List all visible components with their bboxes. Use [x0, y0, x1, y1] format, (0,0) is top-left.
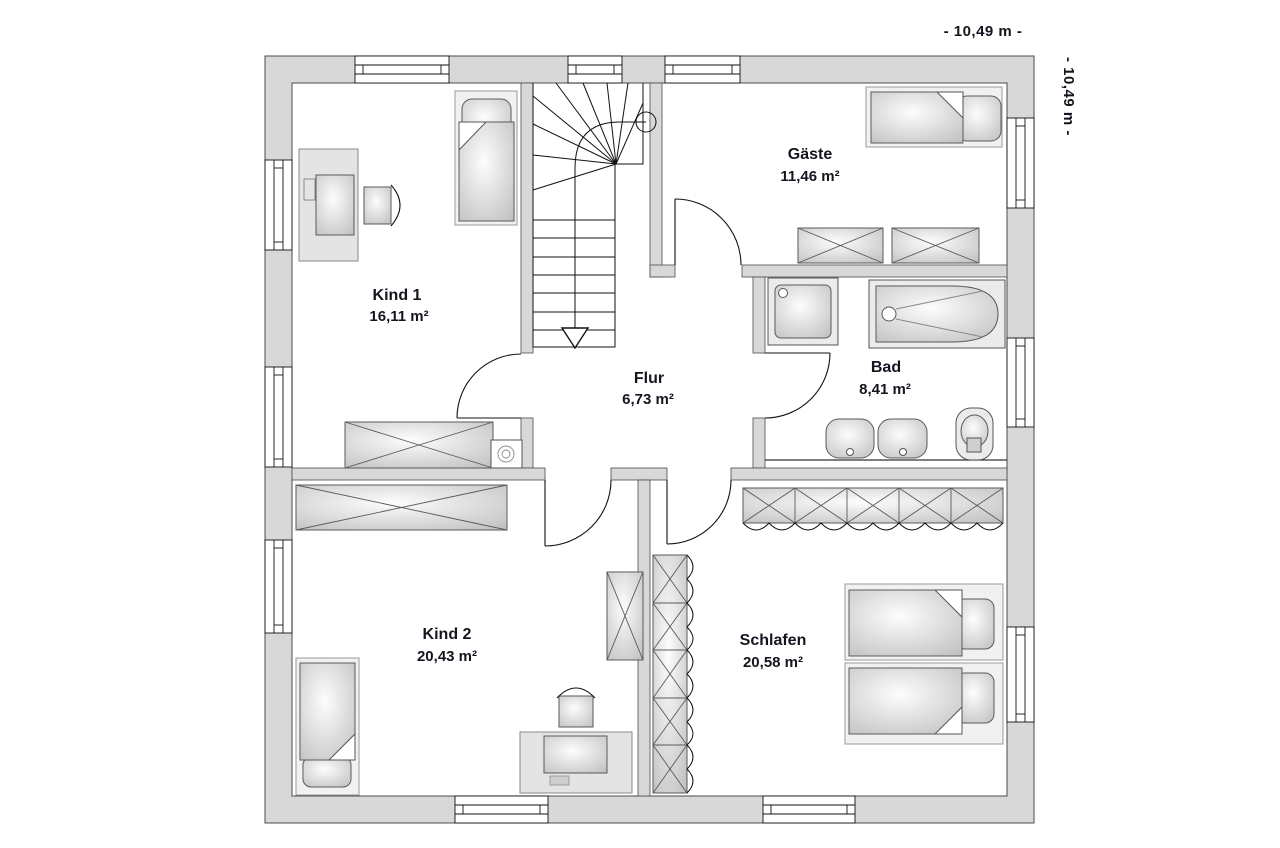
- dresser-gaeste-1: [798, 228, 883, 263]
- bed-kind2: [296, 658, 359, 795]
- shower: [768, 278, 838, 345]
- wastebin-kind1: [491, 440, 522, 468]
- room-label-gaeste: Gäste 11,46 m²: [780, 146, 839, 185]
- room-label-flur: Flur 6,73 m²: [622, 370, 674, 408]
- window-top-kind1: [355, 56, 449, 83]
- toilet: [956, 408, 993, 460]
- room-label-kind1: Kind 1 16,11 m²: [369, 287, 428, 325]
- room-label-kind2: Kind 2 20,43 m²: [417, 626, 477, 665]
- room-name: Flur: [634, 370, 664, 387]
- desk-kind1: [299, 149, 358, 261]
- sink-1: [826, 419, 874, 458]
- window-left-kind1-b: [265, 367, 292, 467]
- wall-flur-bad-lower: [753, 418, 765, 468]
- window-bottom-kind2: [455, 796, 548, 823]
- wardrobe-kind1: [345, 422, 493, 468]
- window-right-bad: [1007, 338, 1034, 427]
- wall-stair-gaeste: [650, 83, 662, 277]
- desk-kind2: [520, 732, 632, 793]
- wall-middle-right: [731, 468, 1007, 480]
- room-name: Kind 2: [423, 626, 472, 643]
- stair-treads: [533, 83, 643, 330]
- chair-kind1: [364, 185, 400, 226]
- wardrobe-schlafen-side: [653, 555, 693, 793]
- chair-kind2: [557, 688, 595, 727]
- door-gaeste: [675, 199, 741, 265]
- room-area: 6,73 m²: [622, 391, 674, 408]
- wall-middle-left: [292, 468, 545, 480]
- wall-gaeste-south-right: [742, 265, 1007, 277]
- room-name: Bad: [871, 359, 901, 376]
- dimension-label-top: - 10,49 m -: [944, 23, 1023, 40]
- wall-kind1-stair-upper: [521, 83, 533, 353]
- door-bad: [765, 353, 830, 418]
- room-area: 11,46 m²: [780, 168, 839, 185]
- sink-2: [878, 419, 927, 458]
- window-top-gaeste: [665, 56, 740, 83]
- floor-plan-svg: Kind 1 16,11 m² Gäste 11,46 m² Flur 6,73…: [0, 0, 1280, 848]
- window-bottom-schlafen: [763, 796, 855, 823]
- hanging-clothes-marks: [743, 523, 1003, 530]
- bed-gaeste: [866, 87, 1002, 147]
- room-name: Gäste: [788, 146, 833, 163]
- wardrobe-kind2-top: [296, 485, 507, 530]
- floor-plan-page: Kind 1 16,11 m² Gäste 11,46 m² Flur 6,73…: [0, 0, 1280, 848]
- window-right-schlafen: [1007, 627, 1034, 722]
- wardrobe-kind2-side: [607, 572, 643, 660]
- dimension-label-right: - 10,49 m -: [1060, 57, 1077, 136]
- staircase: [533, 83, 656, 348]
- window-left-kind2: [265, 540, 292, 633]
- room-area: 20,43 m²: [417, 648, 477, 665]
- bed-kind1: [455, 91, 517, 225]
- hanging-clothes-marks: [687, 555, 693, 793]
- room-label-bad: Bad 8,41 m²: [859, 359, 911, 398]
- bathtub: [869, 280, 1005, 348]
- room-label-schlafen: Schlafen 20,58 m²: [740, 632, 807, 671]
- wardrobe-schlafen-top: [743, 488, 1003, 530]
- window-top-stair: [568, 56, 622, 83]
- wall-kind1-stair-lower: [521, 418, 533, 468]
- room-area: 16,11 m²: [369, 308, 428, 325]
- window-left-kind1-a: [265, 160, 292, 250]
- stair-direction-arrow: [562, 328, 588, 348]
- wall-gaeste-south-left: [650, 265, 675, 277]
- door-kind2: [545, 480, 611, 546]
- room-name: Schlafen: [740, 632, 807, 649]
- dresser-gaeste-2: [892, 228, 979, 263]
- window-right-gaeste: [1007, 118, 1034, 208]
- door-kind1: [457, 354, 521, 418]
- door-schlafen: [667, 480, 731, 544]
- room-name: Kind 1: [373, 287, 422, 304]
- wall-middle-center: [611, 468, 667, 480]
- wall-flur-bad-upper: [753, 277, 765, 353]
- room-area: 20,58 m²: [743, 654, 803, 671]
- double-bed-schlafen: [845, 584, 1003, 744]
- room-area: 8,41 m²: [859, 381, 911, 398]
